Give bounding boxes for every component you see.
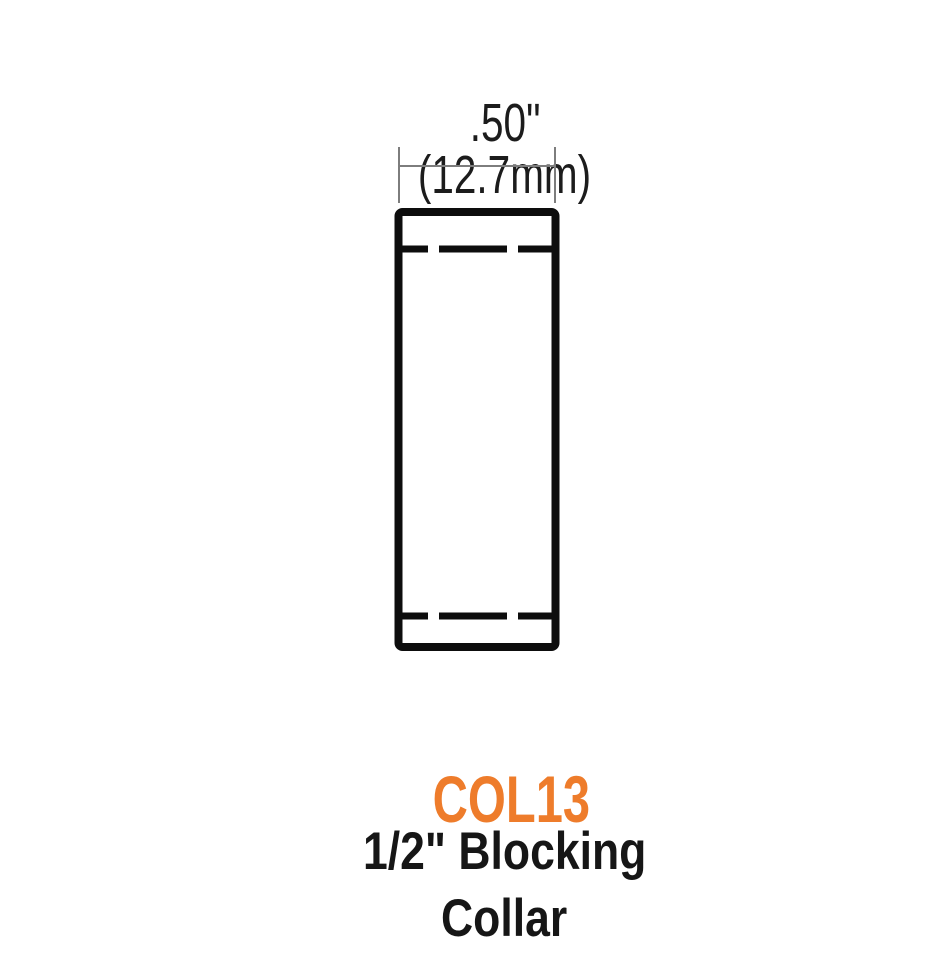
diagram-canvas: .50" (12.7mm) COL13 1/2" Blocking Collar — [0, 0, 950, 954]
part-name-line2-text: Collar — [441, 892, 567, 945]
collar-body-outline — [399, 212, 556, 647]
part-name-line2: Collar — [0, 839, 950, 954]
